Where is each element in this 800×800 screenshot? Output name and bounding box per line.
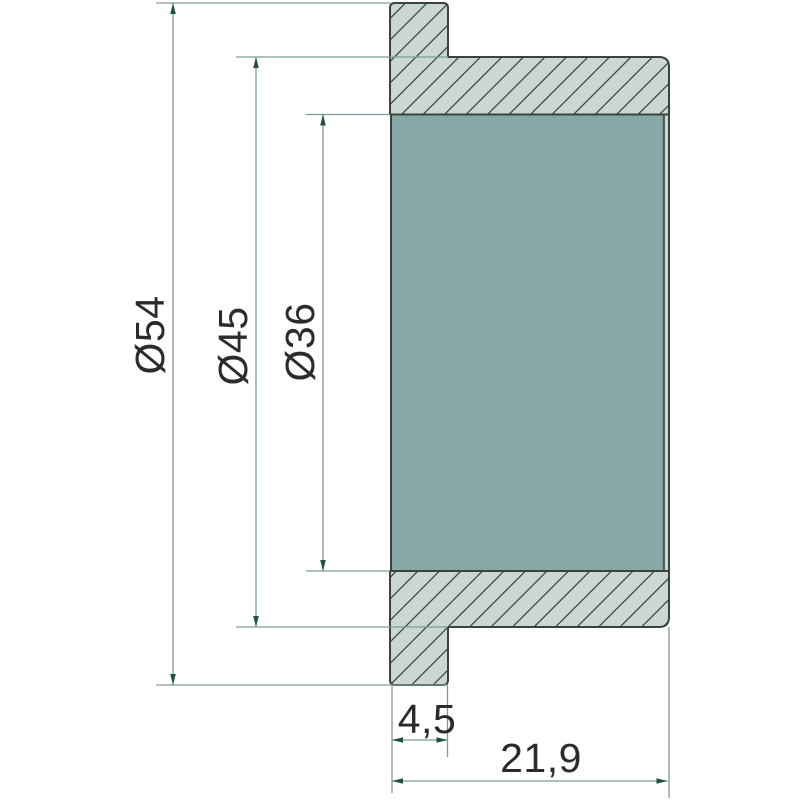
technical-drawing: Ø54 Ø45 Ø36 4,5: [0, 0, 800, 800]
dimension-flange-thickness: 4,5: [392, 685, 456, 793]
hatched-section-bottom: [390, 571, 669, 685]
dim-label-overall-length: 21,9: [500, 735, 582, 781]
part-cross-section: [390, 3, 669, 685]
drawing-canvas: Ø54 Ø45 Ø36 4,5: [0, 0, 800, 800]
arrowhead-down: [253, 616, 259, 627]
arrowhead-up: [170, 3, 176, 14]
dim-label-flange-diameter: Ø54: [127, 296, 173, 375]
dim-label-bore-diameter: Ø36: [277, 303, 323, 382]
arrowhead-right: [657, 778, 668, 784]
hatched-section-top: [390, 3, 669, 115]
arrowhead-left: [392, 778, 403, 784]
dim-label-body-diameter: Ø45: [210, 307, 256, 386]
arrowhead-up: [253, 57, 259, 68]
arrowhead-down: [320, 560, 326, 571]
dimension-bore-diameter: Ø36: [277, 115, 390, 572]
arrowhead-up: [320, 115, 326, 126]
dim-label-flange-thickness: 4,5: [398, 696, 457, 742]
arrowhead-down: [170, 674, 176, 685]
bore-fill-region: [391, 115, 663, 572]
